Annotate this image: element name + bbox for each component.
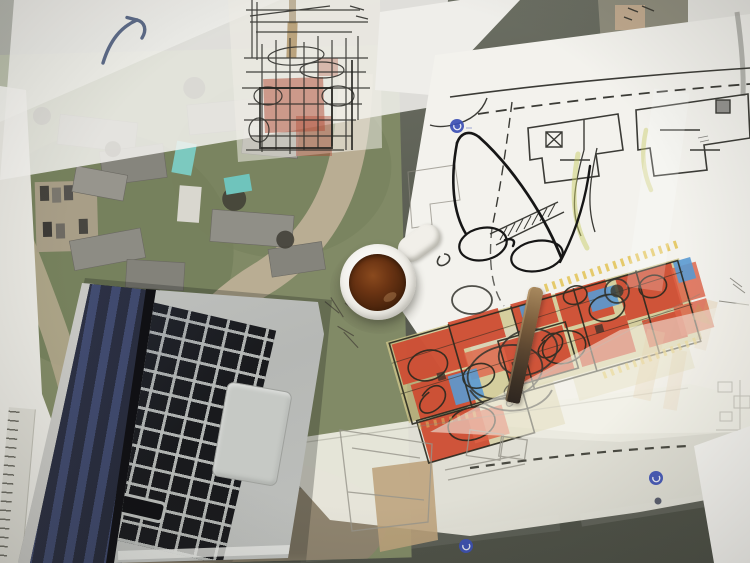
- glasses-temple: [479, 137, 561, 257]
- coffee-surface: [349, 254, 406, 311]
- desk-photo: [0, 0, 750, 563]
- glasses: [430, 110, 610, 280]
- lens-right: [509, 237, 565, 276]
- glasses-temple: [560, 166, 590, 262]
